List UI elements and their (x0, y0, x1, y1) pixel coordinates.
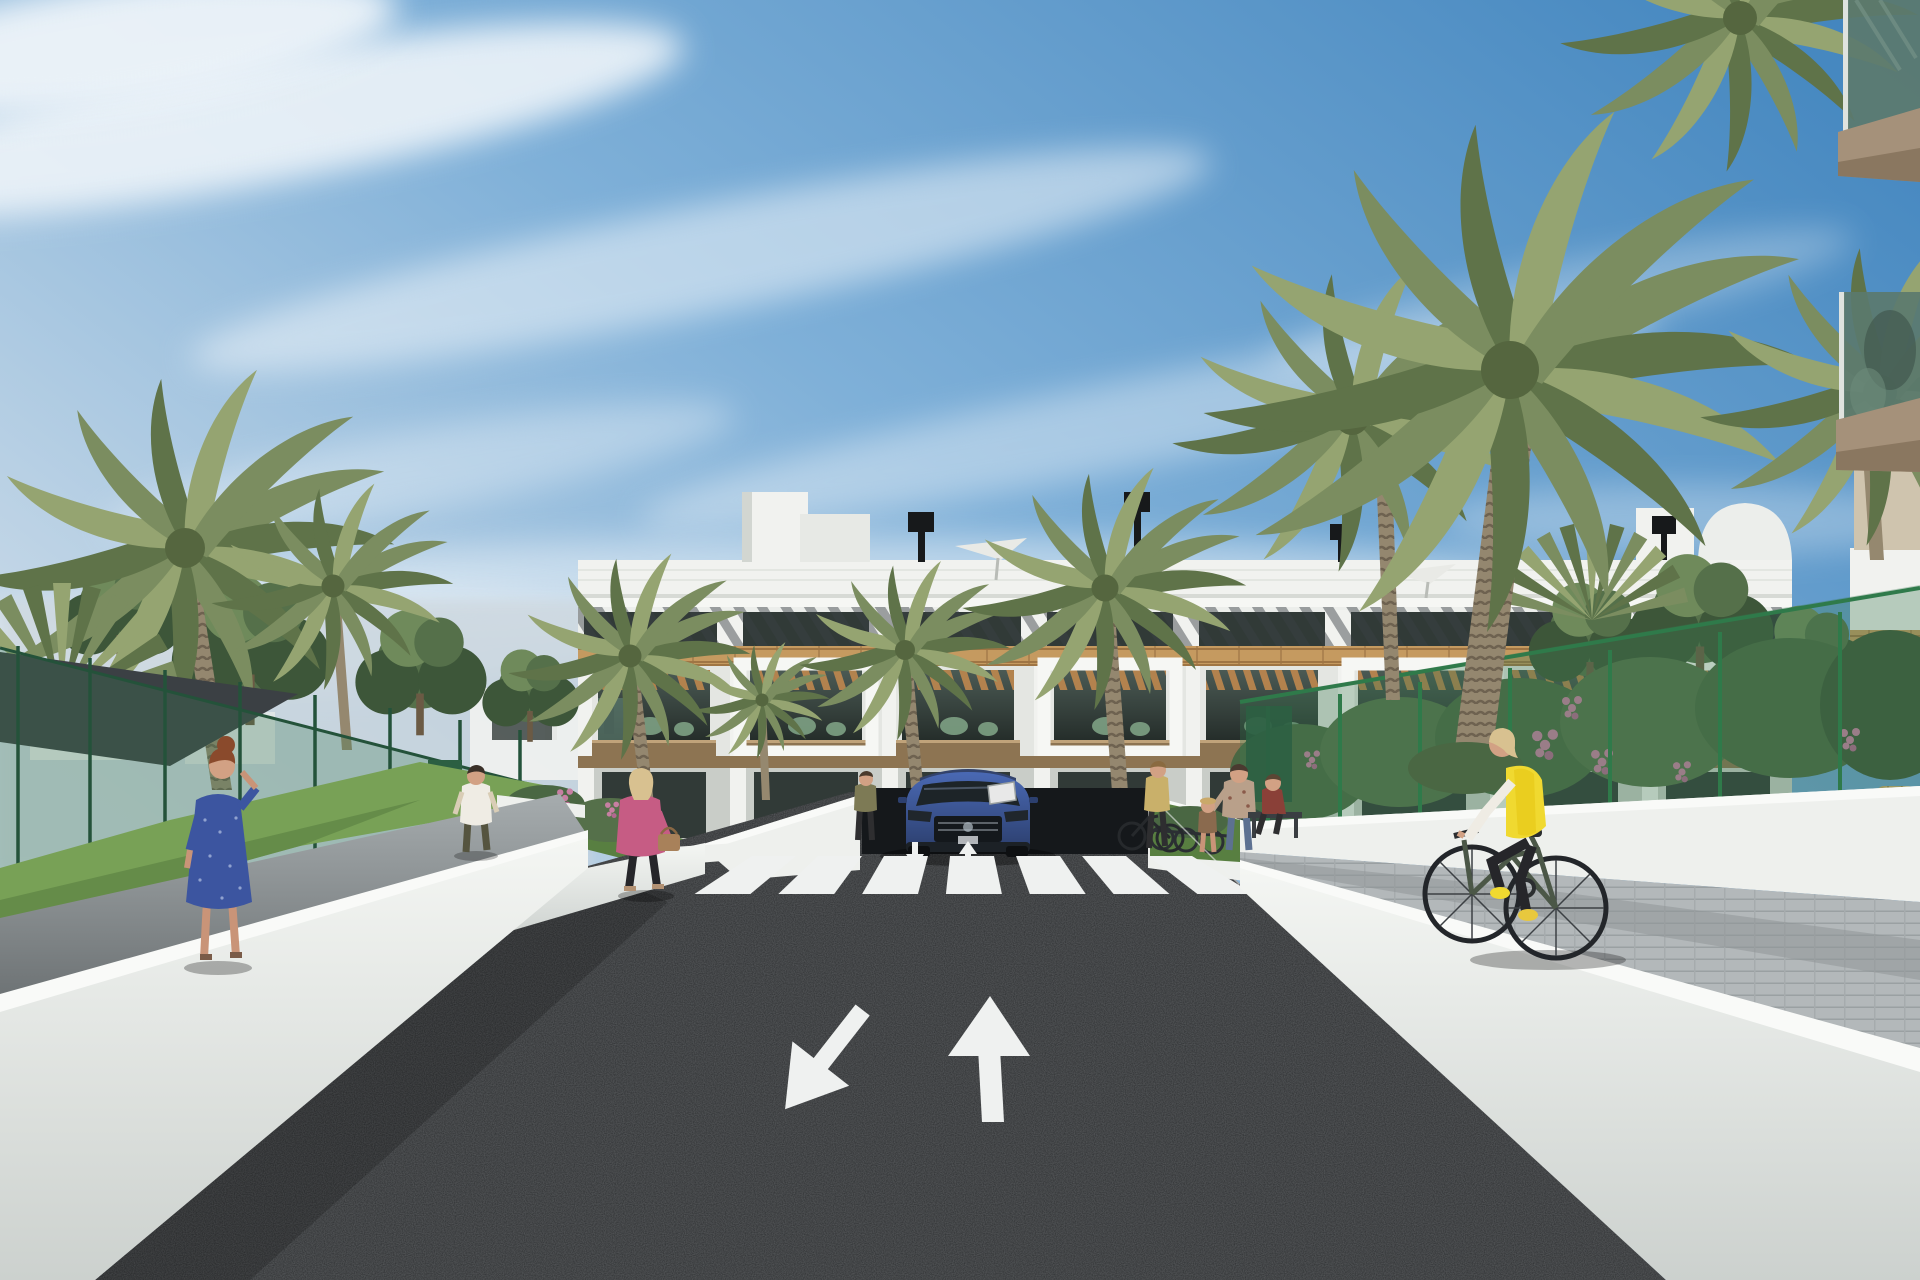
scene-illustration: Architectural rendering: street approach… (0, 0, 1920, 1280)
entrance-sign (988, 782, 1016, 804)
ground (0, 762, 1920, 1280)
render-canvas: Architectural rendering: street approach… (0, 0, 1920, 1280)
